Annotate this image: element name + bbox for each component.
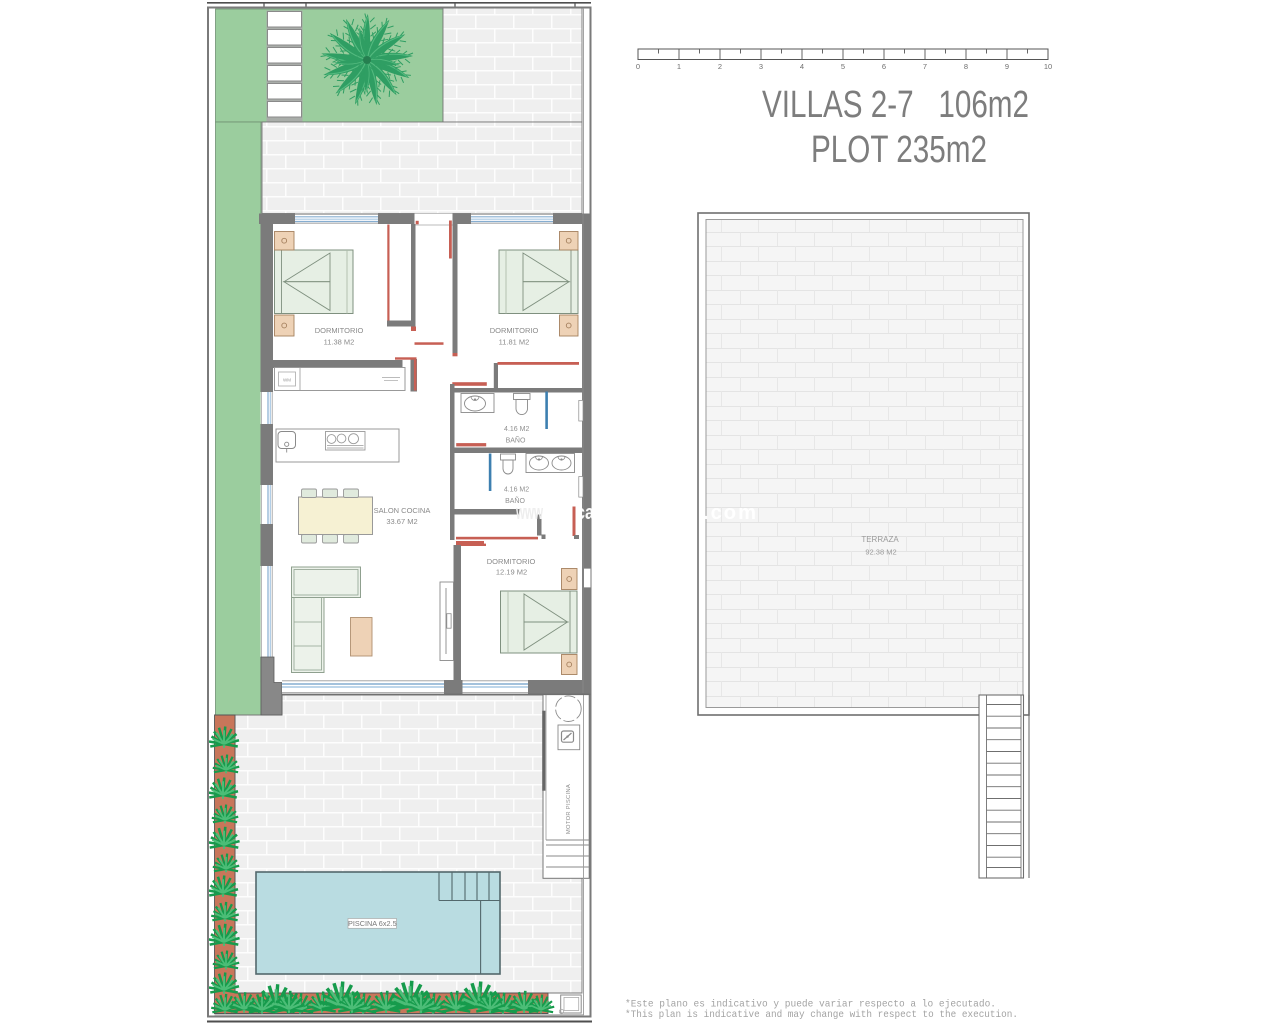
svg-text:8: 8 [964,62,968,71]
svg-text:11.81 M2: 11.81 M2 [499,338,530,347]
svg-text:2: 2 [718,62,722,71]
svg-text:1: 1 [677,62,681,71]
svg-text:PISCINA 6x2.5: PISCINA 6x2.5 [348,919,397,928]
svg-text:4: 4 [800,62,804,71]
svg-text:92.38 M2: 92.38 M2 [865,548,896,557]
svg-text:4.16 M2: 4.16 M2 [504,426,529,433]
svg-text:ca: ca [576,502,595,524]
svg-text:33.67 M2: 33.67 M2 [386,517,417,526]
svg-text:www: www [515,502,543,524]
svg-text:DORMITORIO: DORMITORIO [490,326,539,335]
svg-text:3: 3 [759,62,763,71]
svg-text:WM: WM [283,378,291,383]
svg-text:.com: .com [703,502,758,524]
svg-text:4.16 M2: 4.16 M2 [504,487,529,494]
svg-text:0: 0 [636,62,640,71]
svg-text:*This plan is indicative and m: *This plan is indicative and may change … [625,1009,1018,1021]
svg-text:VILLAS 2-7 106m2: VILLAS 2-7 106m2 [762,84,1029,126]
svg-text:6: 6 [882,62,886,71]
svg-text:9: 9 [1005,62,1009,71]
svg-text:TERRAZA: TERRAZA [861,535,899,544]
svg-text:MOTOR PISCINA: MOTOR PISCINA [566,784,572,834]
svg-text:11.38 M2: 11.38 M2 [324,338,355,347]
svg-text:DORMITORIO: DORMITORIO [487,557,536,566]
svg-text:BAÑO: BAÑO [506,436,526,445]
svg-text:5: 5 [841,62,845,71]
svg-text:7: 7 [923,62,927,71]
svg-text:10: 10 [1044,62,1052,71]
svg-text:12.19 M2: 12.19 M2 [496,568,527,577]
svg-text:SALON COCINA: SALON COCINA [374,506,431,515]
svg-text:DORMITORIO: DORMITORIO [315,326,364,335]
svg-text:PLOT 235m2: PLOT 235m2 [811,129,987,171]
